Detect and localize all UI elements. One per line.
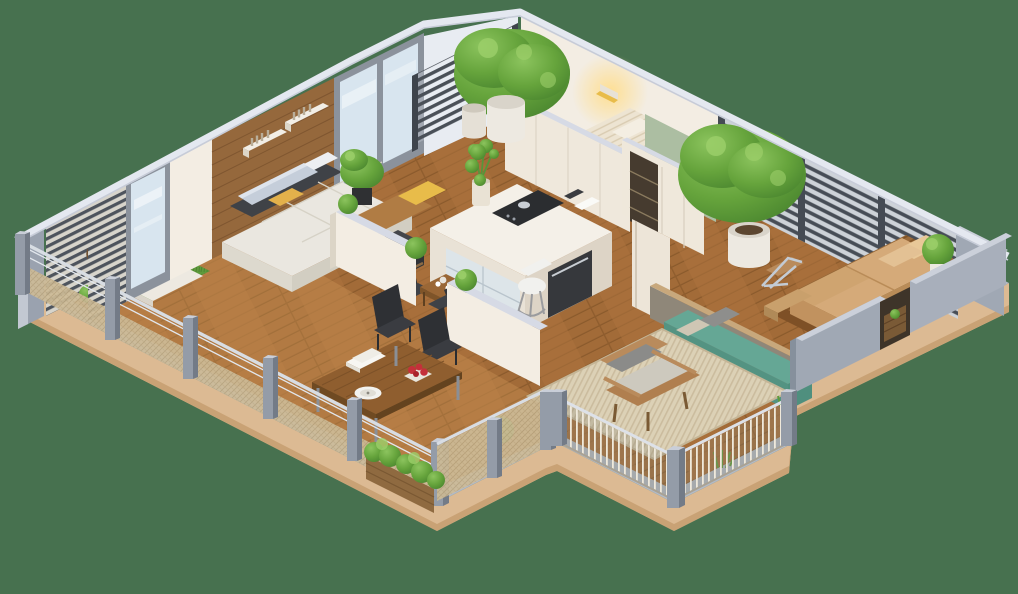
teapot (440, 277, 447, 284)
vine-leaf (474, 174, 486, 186)
sprig-leaf (489, 149, 499, 159)
wall-end (330, 212, 336, 269)
post-side (193, 316, 198, 379)
second-pot-top (462, 103, 486, 112)
plate-dot (367, 392, 370, 395)
shrub-highlight (926, 238, 938, 250)
post-front (15, 234, 25, 295)
post-side (792, 390, 797, 446)
canopy-highlight (770, 170, 786, 186)
second-pot-bottom (462, 129, 486, 138)
pot-on-stove (518, 202, 530, 209)
plant-highlight (345, 151, 355, 161)
wall-bush (405, 237, 427, 259)
canopy-highlight (478, 38, 498, 58)
chair-seat (518, 278, 546, 295)
post-front (781, 392, 792, 446)
post-front (540, 392, 551, 450)
tree-pot-bottom (728, 252, 770, 268)
green-blob (427, 471, 445, 489)
post-side (497, 418, 502, 478)
fence-post (347, 397, 362, 461)
fence-post (15, 231, 30, 295)
tree-canopy3 (498, 44, 570, 100)
white-plate (355, 387, 382, 400)
shrub-ball (922, 234, 954, 266)
wall-bush (455, 269, 477, 291)
niche-sprig (890, 309, 900, 319)
cup (435, 281, 440, 286)
post-side (679, 447, 685, 508)
floorplan-render (0, 0, 1018, 594)
vine-leaf (465, 159, 479, 173)
fence-post (263, 355, 278, 419)
tree-pot-soil (735, 225, 763, 235)
post-front (667, 450, 679, 508)
canopy-highlight (745, 143, 763, 161)
terrace-post (781, 389, 797, 446)
post-front (347, 400, 357, 461)
post-front (551, 392, 562, 446)
post-front (183, 318, 193, 379)
stove-knob (513, 218, 516, 221)
terrace-post (667, 446, 685, 508)
pergola-frame-left (412, 73, 418, 152)
white-wall-segment (170, 139, 212, 280)
post-side (25, 232, 30, 295)
isometric-apartment-svg (0, 0, 1018, 594)
fence-post (183, 315, 198, 379)
slab-end (790, 338, 796, 395)
canopy-highlight (706, 136, 726, 156)
canopy-highlight (540, 72, 556, 88)
canopy-highlight (516, 44, 532, 60)
terrace-post (551, 389, 567, 446)
post-side (357, 398, 362, 461)
wall-bush-hl (458, 271, 467, 280)
fence-post (487, 417, 502, 478)
stove-knob (507, 215, 510, 218)
post-side (273, 356, 278, 419)
tree-pot-top (487, 95, 525, 109)
post-side (115, 277, 120, 340)
post-front (263, 358, 273, 419)
vine-leaf (470, 144, 486, 160)
green-highlight (408, 452, 420, 464)
green-highlight (376, 438, 388, 450)
post-side (562, 390, 567, 446)
post-front (487, 420, 497, 478)
fence-post (105, 276, 120, 340)
tree-pot-bottom (487, 129, 525, 143)
post-front (105, 279, 115, 340)
wall-bush (338, 194, 358, 214)
flower (420, 368, 428, 376)
flower (413, 371, 419, 377)
plant-canopy2 (340, 149, 368, 171)
